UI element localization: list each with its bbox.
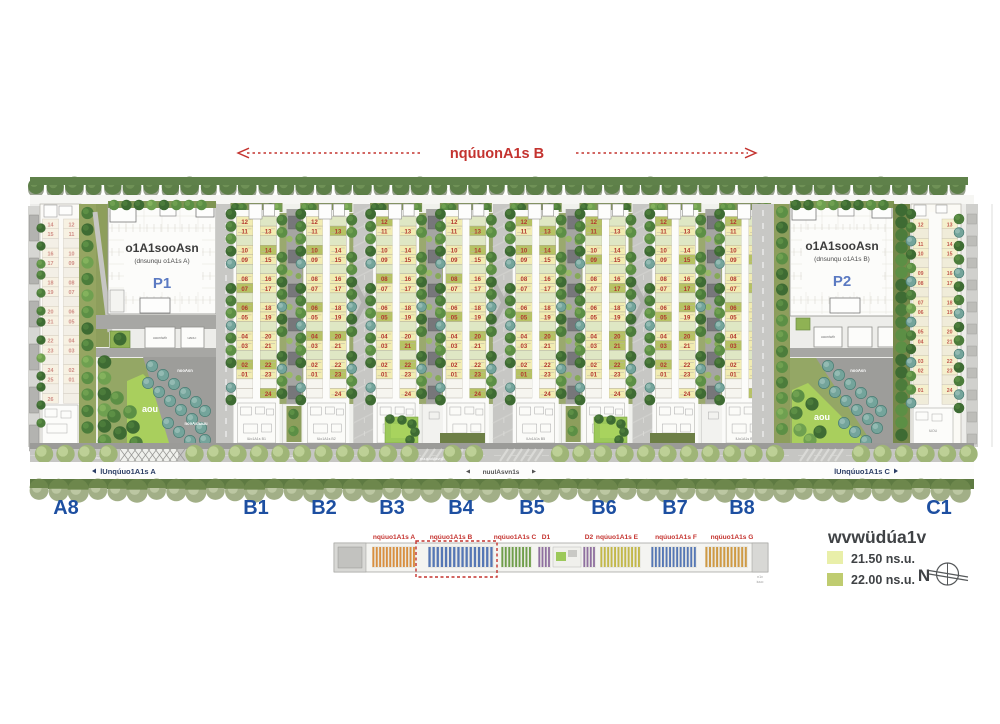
svg-text:08: 08 [730,277,737,283]
svg-text:09: 09 [311,258,318,264]
svg-text:24: 24 [265,392,272,398]
svg-text:01: 01 [521,373,528,379]
svg-text:21: 21 [544,344,551,350]
svg-text:09: 09 [660,258,667,264]
svg-text:12: 12 [381,220,388,226]
svg-text:17: 17 [335,287,342,293]
svg-text:22: 22 [947,359,953,365]
svg-text:24: 24 [684,392,691,398]
svg-text:18: 18 [335,306,342,312]
svg-text:D2: D2 [585,534,594,541]
svg-text:11: 11 [521,230,528,236]
svg-text:(dnsunqu o1A1s A): (dnsunqu o1A1s A) [134,258,189,265]
svg-text:23: 23 [684,373,691,379]
svg-text:nqúuo1A1s A: nqúuo1A1s A [373,534,415,541]
svg-text:07: 07 [381,287,388,293]
svg-text:15: 15 [614,258,621,264]
svg-text:15: 15 [404,258,411,264]
svg-text:02: 02 [730,363,737,369]
svg-text:05: 05 [918,330,924,336]
svg-text:P1: P1 [153,275,171,292]
svg-text:16: 16 [265,277,272,283]
svg-text:n1v: n1v [757,575,763,579]
svg-text:07: 07 [241,287,248,293]
svg-text:04: 04 [660,335,667,341]
svg-text:08: 08 [311,277,318,283]
svg-text:19: 19 [614,315,621,321]
svg-text:21: 21 [474,344,481,350]
svg-text:08: 08 [521,277,528,283]
svg-text:10: 10 [918,252,924,258]
svg-text:12: 12 [730,220,737,226]
svg-text:05: 05 [730,315,737,321]
svg-text:06: 06 [590,306,597,312]
svg-text:09: 09 [590,258,597,264]
svg-text:uaoniwih: uaoniwih [153,336,167,340]
svg-text:14: 14 [947,242,953,248]
svg-text:08: 08 [918,281,924,287]
svg-text:22: 22 [404,363,411,369]
svg-text:07: 07 [660,287,667,293]
svg-text:18: 18 [265,306,272,312]
svg-text:uaoniwih: uaoniwih [821,335,835,339]
svg-text:05: 05 [451,315,458,321]
svg-text:19: 19 [544,315,551,321]
svg-text:20: 20 [335,335,342,341]
svg-text:08: 08 [590,277,597,283]
svg-text:10: 10 [660,249,667,255]
svg-text:24: 24 [947,388,953,394]
svg-text:02: 02 [451,363,458,369]
svg-text:nooAsn: nooAsn [850,368,866,373]
svg-text:23: 23 [474,373,481,379]
svg-text:B1: B1 [243,497,269,519]
svg-text:o1A1sooAsn: o1A1sooAsn [125,241,198,255]
svg-text:16: 16 [614,277,621,283]
svg-text:08: 08 [241,277,248,283]
svg-text:01: 01 [381,373,388,379]
svg-text:12: 12 [521,220,528,226]
svg-text:04: 04 [381,335,388,341]
svg-text:12: 12 [69,222,75,228]
svg-text:24: 24 [614,392,621,398]
svg-text:02: 02 [660,363,667,369]
svg-text:04: 04 [521,335,528,341]
svg-text:09: 09 [918,271,924,277]
svg-text:nqúuonA1s B: nqúuonA1s B [450,146,544,162]
svg-text:06: 06 [451,306,458,312]
svg-text:12: 12 [590,220,597,226]
svg-text:04: 04 [451,335,458,341]
svg-text:03: 03 [918,359,924,365]
svg-text:B5: B5 [519,497,545,519]
svg-text:15: 15 [335,258,342,264]
svg-text:aou: aou [814,412,830,422]
svg-text:04: 04 [590,335,597,341]
svg-text:02: 02 [521,363,528,369]
svg-text:03: 03 [451,344,458,350]
svg-text:P2: P2 [833,273,851,290]
svg-text:B6: B6 [591,497,617,519]
svg-text:06: 06 [730,306,737,312]
svg-text:16: 16 [544,277,551,283]
svg-text:12: 12 [660,220,667,226]
svg-text:11: 11 [730,230,737,236]
svg-text:09: 09 [451,258,458,264]
svg-text:14: 14 [335,249,342,255]
svg-text:04: 04 [311,335,318,341]
svg-text:11: 11 [381,230,388,236]
svg-text:iuuo: iuuo [757,580,764,584]
svg-text:07: 07 [730,287,737,293]
svg-text:B7: B7 [662,497,688,519]
svg-text:21: 21 [947,339,953,345]
svg-text:07: 07 [918,300,924,306]
svg-text:06: 06 [660,306,667,312]
svg-text:05: 05 [521,315,528,321]
svg-text:02: 02 [241,363,248,369]
svg-text:N: N [918,566,930,585]
svg-text:nqúuo1A1s C: nqúuo1A1s C [494,534,537,541]
svg-text:24: 24 [48,368,54,374]
svg-text:15: 15 [48,232,54,238]
svg-text:nuuiuulAsvn1s: nuuiuulAsvn1s [420,456,446,461]
svg-text:14: 14 [544,249,551,255]
svg-text:22.00 ns.u.: 22.00 ns.u. [851,573,915,587]
svg-text:05: 05 [69,319,75,325]
svg-text:05: 05 [311,315,318,321]
svg-text:14: 14 [265,249,272,255]
svg-text:17: 17 [684,287,691,293]
svg-text:08: 08 [381,277,388,283]
svg-text:18: 18 [614,306,621,312]
svg-text:07: 07 [69,290,75,296]
svg-text:o1A1sooAsn: o1A1sooAsn [805,239,878,253]
svg-text:20: 20 [684,335,691,341]
svg-text:13: 13 [684,230,691,236]
svg-text:lUOU: lUOU [929,429,938,433]
svg-text:10: 10 [69,251,75,257]
svg-text:B4: B4 [448,497,474,519]
svg-text:23: 23 [544,373,551,379]
svg-text:(dnsunqu o1A1s B): (dnsunqu o1A1s B) [814,256,870,263]
svg-text:01: 01 [918,388,924,394]
svg-text:20: 20 [48,310,54,316]
svg-text:03: 03 [311,344,318,350]
svg-text:21.50 ns.u.: 21.50 ns.u. [851,552,915,566]
svg-text:13: 13 [474,230,481,236]
svg-text:16: 16 [404,277,411,283]
svg-text:15: 15 [947,252,953,258]
svg-text:03: 03 [381,344,388,350]
svg-text:19: 19 [404,315,411,321]
svg-text:nooAsnauu: nooAsnauu [184,421,207,426]
svg-text:C1: C1 [926,497,952,519]
svg-text:nqúuo1A1s G: nqúuo1A1s G [711,534,754,541]
svg-text:07: 07 [311,287,318,293]
svg-text:12: 12 [311,220,318,226]
svg-text:19: 19 [265,315,272,321]
svg-text:B8: B8 [729,497,755,519]
svg-text:22: 22 [474,363,481,369]
svg-text:02: 02 [918,369,924,375]
svg-text:lUnqúuo1A1s C: lUnqúuo1A1s C [834,467,890,476]
svg-text:14: 14 [48,222,54,228]
svg-text:12: 12 [451,220,458,226]
svg-text:10: 10 [311,249,318,255]
svg-text:01: 01 [730,373,737,379]
svg-text:17: 17 [48,261,54,267]
svg-text:06: 06 [381,306,388,312]
svg-text:09: 09 [730,258,737,264]
svg-text:23: 23 [947,369,953,375]
svg-text:02: 02 [311,363,318,369]
svg-text:09: 09 [381,258,388,264]
svg-text:nuulAsvn1s: nuulAsvn1s [483,469,520,476]
svg-text:20: 20 [544,335,551,341]
svg-text:16: 16 [684,277,691,283]
svg-text:03: 03 [660,344,667,350]
svg-text:03: 03 [730,344,737,350]
svg-text:20: 20 [474,335,481,341]
svg-text:17: 17 [404,287,411,293]
svg-text:22: 22 [265,363,272,369]
svg-text:01: 01 [311,373,318,379]
svg-text:18: 18 [947,300,953,306]
svg-text:01: 01 [69,378,75,384]
svg-text:lUo1A1s B5: lUo1A1s B5 [526,437,545,441]
svg-text:D1: D1 [542,534,551,541]
svg-text:05: 05 [590,315,597,321]
svg-text:25: 25 [48,378,54,384]
svg-text:22: 22 [684,363,691,369]
svg-text:A8: A8 [53,497,79,519]
svg-text:wvwüdúa1v: wvwüdúa1v [827,527,926,547]
svg-text:10: 10 [521,249,528,255]
svg-text:14: 14 [404,249,411,255]
svg-text:06: 06 [69,310,75,316]
svg-text:22: 22 [614,363,621,369]
svg-text:15: 15 [684,258,691,264]
svg-text:06: 06 [521,306,528,312]
svg-text:13: 13 [544,230,551,236]
svg-text:nqúuo1A1s B: nqúuo1A1s B [430,534,473,541]
svg-text:12: 12 [241,220,248,226]
svg-text:11: 11 [591,230,598,236]
svg-text:11: 11 [451,230,458,236]
svg-text:10: 10 [241,249,248,255]
svg-text:01: 01 [241,373,248,379]
svg-text:17: 17 [544,287,551,293]
svg-text:13: 13 [947,222,953,228]
svg-text:11: 11 [69,232,75,238]
svg-text:lUo1A1s B2: lUo1A1s B2 [317,437,336,441]
svg-text:10: 10 [590,249,597,255]
svg-text:19: 19 [684,315,691,321]
svg-text:06: 06 [311,306,318,312]
svg-text:05: 05 [660,315,667,321]
svg-text:01: 01 [660,373,667,379]
svg-text:18: 18 [544,306,551,312]
svg-text:14: 14 [614,249,621,255]
svg-text:05: 05 [241,315,248,321]
svg-text:06: 06 [241,306,248,312]
svg-text:14: 14 [474,249,481,255]
svg-text:21: 21 [614,344,621,350]
svg-text:17: 17 [614,287,621,293]
svg-text:07: 07 [521,287,528,293]
svg-text:13: 13 [614,230,621,236]
svg-text:16: 16 [474,277,481,283]
svg-text:23: 23 [335,373,342,379]
svg-text:21: 21 [335,344,342,350]
svg-text:19: 19 [474,315,481,321]
svg-text:24: 24 [335,392,342,398]
svg-text:23: 23 [48,348,54,354]
svg-text:24: 24 [474,392,481,398]
svg-text:07: 07 [451,287,458,293]
svg-text:13: 13 [265,230,272,236]
svg-text:19: 19 [335,315,342,321]
svg-text:18: 18 [48,281,54,287]
svg-text:11: 11 [660,230,667,236]
svg-text:04: 04 [730,335,737,341]
svg-text:26: 26 [48,397,54,403]
svg-text:03: 03 [241,344,248,350]
svg-text:14: 14 [684,249,691,255]
svg-text:02: 02 [69,368,75,374]
svg-text:18: 18 [684,306,691,312]
svg-text:22: 22 [544,363,551,369]
svg-text:23: 23 [265,373,272,379]
svg-text:12: 12 [918,222,924,228]
svg-text:03: 03 [590,344,597,350]
svg-text:21: 21 [404,344,411,350]
svg-text:16: 16 [947,271,953,277]
svg-text:17: 17 [947,281,953,287]
svg-text:20: 20 [947,330,953,336]
svg-text:lUo1A1s B8: lUo1A1s B8 [736,437,755,441]
svg-text:10: 10 [451,249,458,255]
svg-text:B3: B3 [379,497,405,519]
svg-text:nqúuo1A1s F: nqúuo1A1s F [655,534,697,541]
svg-text:20: 20 [614,335,621,341]
svg-text:22: 22 [48,339,54,345]
svg-text:24: 24 [544,392,551,398]
svg-text:24: 24 [404,392,411,398]
svg-text:05: 05 [381,315,388,321]
svg-text:13: 13 [335,230,342,236]
svg-text:18: 18 [474,306,481,312]
svg-text:04: 04 [241,335,248,341]
svg-text:02: 02 [590,363,597,369]
svg-text:B2: B2 [311,497,337,519]
svg-text:21: 21 [684,344,691,350]
svg-text:nooAsn: nooAsn [177,368,193,373]
svg-text:16: 16 [335,277,342,283]
svg-text:17: 17 [265,287,272,293]
svg-text:03: 03 [521,344,528,350]
svg-text:aou: aou [142,404,158,414]
svg-text:23: 23 [404,373,411,379]
svg-text:09: 09 [521,258,528,264]
svg-text:11: 11 [918,242,924,248]
svg-text:21: 21 [265,344,272,350]
svg-text:19: 19 [947,310,953,316]
svg-text:uaou:: uaou: [188,336,197,340]
svg-text:23: 23 [614,373,621,379]
svg-text:06: 06 [918,310,924,316]
svg-text:09: 09 [69,261,75,267]
svg-text:11: 11 [242,230,249,236]
svg-text:11: 11 [311,230,318,236]
svg-text:17: 17 [474,287,481,293]
svg-text:07: 07 [590,287,597,293]
svg-text:lUnqúuo1A1s A: lUnqúuo1A1s A [100,467,156,476]
svg-text:22: 22 [335,363,342,369]
svg-text:19: 19 [48,290,54,296]
svg-text:10: 10 [381,249,388,255]
svg-text:15: 15 [544,258,551,264]
svg-text:10: 10 [730,249,737,255]
svg-text:lUo1A1s B1: lUo1A1s B1 [247,437,266,441]
svg-text:03: 03 [69,348,75,354]
svg-text:nqúuo1A1s E: nqúuo1A1s E [596,534,639,541]
svg-text:09: 09 [241,258,248,264]
svg-text:16: 16 [48,251,54,257]
svg-text:20: 20 [265,335,272,341]
svg-text:21: 21 [48,319,54,325]
svg-text:18: 18 [404,306,411,312]
svg-text:15: 15 [265,258,272,264]
svg-text:08: 08 [451,277,458,283]
svg-text:04: 04 [918,339,924,345]
svg-text:20: 20 [404,335,411,341]
svg-text:15: 15 [474,258,481,264]
svg-text:13: 13 [404,230,411,236]
svg-text:08: 08 [69,281,75,287]
svg-text:04: 04 [69,339,75,345]
svg-text:02: 02 [381,363,388,369]
svg-text:01: 01 [590,373,597,379]
svg-text:08: 08 [660,277,667,283]
svg-text:01: 01 [451,373,458,379]
